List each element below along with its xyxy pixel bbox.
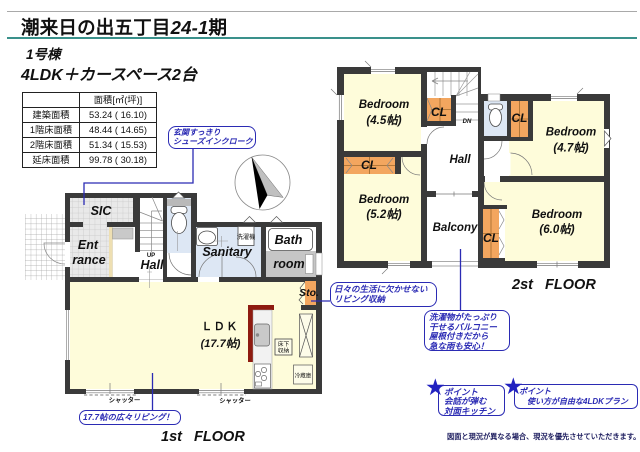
svg-text:Bedroom: Bedroom: [546, 127, 596, 139]
svg-text:Balcony: Balcony: [433, 222, 478, 234]
svg-text:rance: rance: [72, 253, 105, 267]
svg-text:CL: CL: [483, 231, 499, 245]
svg-text:シャッター: シャッター: [109, 395, 140, 404]
svg-text:Sto.: Sto.: [299, 287, 319, 299]
svg-text:room: room: [273, 257, 304, 271]
svg-text:(5.2帖): (5.2帖): [366, 208, 401, 221]
svg-text:シャッター: シャッター: [219, 396, 250, 405]
svg-text:CL: CL: [431, 105, 447, 119]
svg-text:SIC: SIC: [91, 204, 113, 218]
svg-text:Bedroom: Bedroom: [359, 194, 409, 206]
svg-text:冷蔵庫: 冷蔵庫: [295, 372, 312, 380]
svg-text:CL: CL: [512, 111, 528, 125]
svg-text:(6.0帖): (6.0帖): [539, 223, 574, 236]
svg-text:Bath: Bath: [275, 233, 303, 247]
svg-text:ＬＤＫ: ＬＤＫ: [201, 320, 239, 333]
svg-text:UP: UP: [147, 253, 155, 259]
svg-text:DN: DN: [463, 119, 472, 125]
svg-text:床下: 床下: [278, 340, 290, 348]
svg-text:CL: CL: [361, 158, 377, 172]
svg-text:(4.7帖): (4.7帖): [553, 142, 588, 155]
svg-text:Hall: Hall: [449, 154, 471, 166]
svg-text:Bedroom: Bedroom: [359, 99, 409, 111]
svg-text:Ent: Ent: [78, 238, 99, 252]
svg-text:洗濯機: 洗濯機: [237, 233, 256, 241]
svg-text:(17.7帖): (17.7帖): [201, 337, 241, 350]
svg-text:(4.5帖): (4.5帖): [366, 114, 401, 127]
svg-text:Sanitary: Sanitary: [202, 245, 252, 259]
svg-text:Hall: Hall: [141, 258, 164, 272]
svg-text:収納: 収納: [278, 347, 290, 355]
svg-text:Bedroom: Bedroom: [532, 209, 582, 221]
